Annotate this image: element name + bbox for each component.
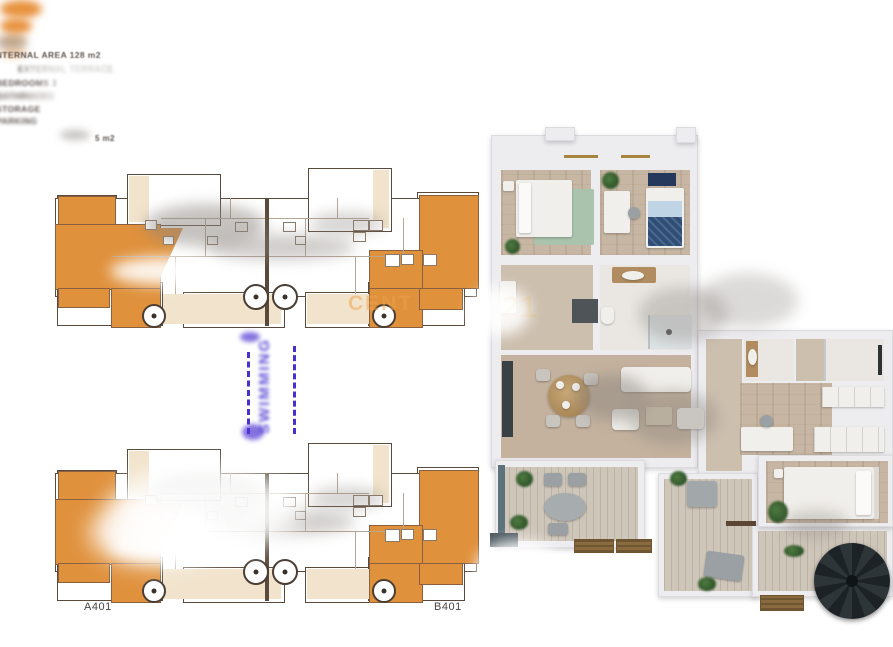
building-plan-upper: CENT bbox=[55, 162, 483, 332]
unit-label-a401: A401 bbox=[84, 601, 112, 613]
dining-chair bbox=[546, 415, 560, 427]
stair-circle bbox=[272, 284, 298, 310]
stair-circle bbox=[372, 579, 396, 603]
plate bbox=[556, 381, 564, 389]
window-rail bbox=[621, 155, 650, 158]
nightstand bbox=[503, 181, 514, 191]
pool-scribble-bottom bbox=[242, 424, 264, 440]
plant bbox=[510, 515, 528, 530]
stair-circle bbox=[243, 284, 269, 310]
gray-smudge bbox=[310, 212, 385, 234]
stair-circle-hub bbox=[152, 589, 157, 594]
stair-circle-hub bbox=[283, 295, 288, 300]
wall-line bbox=[355, 531, 356, 569]
stair-circle-hub bbox=[152, 314, 157, 319]
bedroom-3-headboard bbox=[874, 467, 879, 519]
study-chair bbox=[760, 415, 773, 427]
fixture bbox=[401, 254, 414, 265]
orange-smudge bbox=[0, 18, 32, 34]
wardrobe bbox=[814, 427, 884, 452]
closet-dark bbox=[572, 299, 598, 323]
bedroom-2-sheet bbox=[648, 201, 682, 218]
stair-circle-hub bbox=[254, 295, 259, 300]
bedroom-2-desk bbox=[604, 191, 630, 233]
gray-smudge bbox=[783, 510, 848, 538]
bath-sink bbox=[622, 271, 644, 280]
gray-smudge bbox=[60, 130, 90, 140]
fixture bbox=[385, 254, 400, 267]
stair-circle bbox=[142, 579, 166, 603]
eraser-smudge bbox=[38, 116, 128, 127]
desk-chair bbox=[628, 207, 640, 219]
spec-footnote: 5 m2 bbox=[95, 134, 115, 143]
plant bbox=[670, 471, 687, 486]
plant bbox=[505, 239, 520, 254]
roof-bump bbox=[545, 127, 575, 141]
bedroom-3-pillows bbox=[856, 471, 871, 515]
orange-terrace-right bbox=[419, 195, 479, 289]
gray-smudge bbox=[310, 487, 385, 509]
spec-line-parking: PARKING bbox=[0, 116, 37, 126]
sideboard-dark bbox=[502, 361, 513, 437]
dining-chair bbox=[536, 369, 550, 381]
stair-circle-hub bbox=[283, 570, 288, 575]
orange-terrace-right bbox=[419, 288, 463, 310]
plate bbox=[562, 401, 570, 409]
doormat bbox=[760, 595, 804, 611]
plant bbox=[784, 545, 804, 557]
orange-terrace-left bbox=[58, 196, 116, 227]
eraser-smudge bbox=[120, 50, 230, 64]
window-rail bbox=[564, 155, 598, 158]
gray-smudge bbox=[0, 36, 28, 49]
plant bbox=[516, 471, 533, 487]
terrace-seating bbox=[687, 481, 717, 507]
stair-circle bbox=[272, 559, 298, 585]
outdoor-chair bbox=[548, 523, 568, 535]
bath-a-sink bbox=[748, 349, 757, 365]
fixture bbox=[423, 529, 437, 541]
eraser-smudge bbox=[470, 287, 530, 335]
outdoor-chair bbox=[544, 473, 562, 486]
doormat bbox=[616, 539, 652, 553]
wall-line bbox=[355, 256, 356, 294]
fixture bbox=[385, 529, 400, 542]
stair-circle bbox=[142, 304, 166, 328]
stair-circle bbox=[243, 559, 269, 585]
spec-line-storage: STORAGE bbox=[0, 104, 41, 114]
shower-glass bbox=[824, 339, 826, 381]
nightstand bbox=[774, 469, 783, 478]
towel-rail bbox=[878, 345, 882, 375]
wall-line bbox=[403, 493, 404, 531]
floor-plan-sheet: INTERNAL AREA 128 m2 EXTERNAL TERRACE BE… bbox=[0, 0, 893, 647]
outdoor-table bbox=[544, 493, 586, 521]
eraser-smudge bbox=[30, 91, 120, 102]
pool-label: SWIMMING bbox=[256, 346, 273, 434]
stair-circle-hub bbox=[382, 589, 387, 594]
orange-terrace-left bbox=[58, 471, 116, 502]
toilet bbox=[601, 307, 614, 324]
orange-terrace-left bbox=[58, 288, 110, 308]
wardrobe bbox=[822, 387, 884, 407]
roof-bump bbox=[676, 127, 696, 143]
orange-terrace-right bbox=[419, 470, 479, 564]
pool-dashed-line-right bbox=[293, 346, 296, 434]
corridor-floor bbox=[796, 339, 824, 381]
bedroom-1-pillows bbox=[519, 183, 531, 233]
watermark-cent: CENT bbox=[348, 292, 413, 316]
eraser-smudge bbox=[40, 78, 120, 89]
wall-line bbox=[403, 218, 404, 256]
orange-terrace-left bbox=[58, 563, 110, 583]
eraser-smudge bbox=[20, 63, 140, 76]
plant bbox=[698, 577, 716, 591]
eraser-smudge bbox=[48, 104, 133, 115]
eraser-smudge bbox=[476, 540, 561, 595]
dining-chair bbox=[576, 415, 590, 427]
bedroom-2-blanket bbox=[648, 217, 682, 246]
eraser-smudge bbox=[90, 500, 220, 565]
outdoor-chair bbox=[568, 473, 586, 486]
orange-smudge bbox=[0, 0, 42, 18]
eraser-smudge bbox=[110, 257, 220, 285]
cream-zone bbox=[129, 176, 149, 222]
doormat bbox=[574, 539, 614, 553]
pool-dashed-line-left bbox=[247, 352, 250, 434]
fixture bbox=[283, 222, 296, 232]
gray-smudge bbox=[628, 390, 718, 445]
unit-label-b401: B401 bbox=[434, 601, 462, 613]
terrace-bench bbox=[726, 521, 756, 526]
fixture bbox=[423, 254, 437, 266]
gray-smudge bbox=[205, 234, 355, 260]
stair-circle-hub bbox=[254, 570, 259, 575]
fixture bbox=[401, 529, 414, 540]
render-3d-apartment: 21 bbox=[488, 125, 893, 647]
balcony-glass-rail bbox=[498, 465, 505, 539]
plant bbox=[602, 172, 619, 189]
spec-line-internal-area: INTERNAL AREA 128 m2 bbox=[0, 50, 101, 60]
study-desk bbox=[741, 427, 793, 451]
orange-terrace-right bbox=[419, 563, 463, 585]
bedroom-2-wall-art bbox=[648, 173, 676, 186]
spiral-hub bbox=[846, 575, 858, 587]
bathroom-b-floor bbox=[826, 339, 884, 381]
gray-smudge bbox=[698, 273, 798, 328]
